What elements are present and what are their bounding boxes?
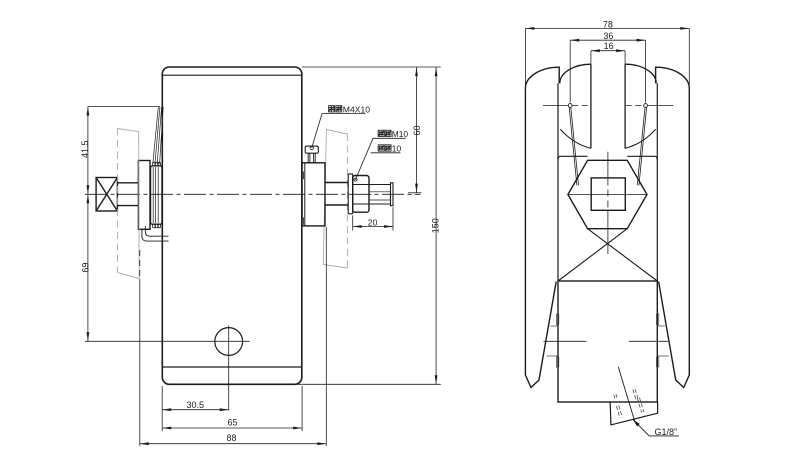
svg-text:M4X10: M4X10 [343,104,370,114]
svg-text:69: 69 [80,263,90,273]
svg-text:36: 36 [603,31,613,41]
svg-text:88: 88 [227,433,237,443]
svg-text:65: 65 [228,418,238,428]
svg-text:M10: M10 [392,129,409,139]
svg-text:60: 60 [412,125,422,135]
svg-text:41.5: 41.5 [80,140,90,158]
svg-text:10: 10 [392,143,402,153]
svg-text:16: 16 [604,41,614,51]
svg-text:G1/8”: G1/8” [655,427,678,437]
svg-text:78: 78 [603,19,613,29]
svg-text:20: 20 [368,217,378,227]
svg-text:30.5: 30.5 [187,400,205,410]
svg-text:150: 150 [431,218,441,233]
